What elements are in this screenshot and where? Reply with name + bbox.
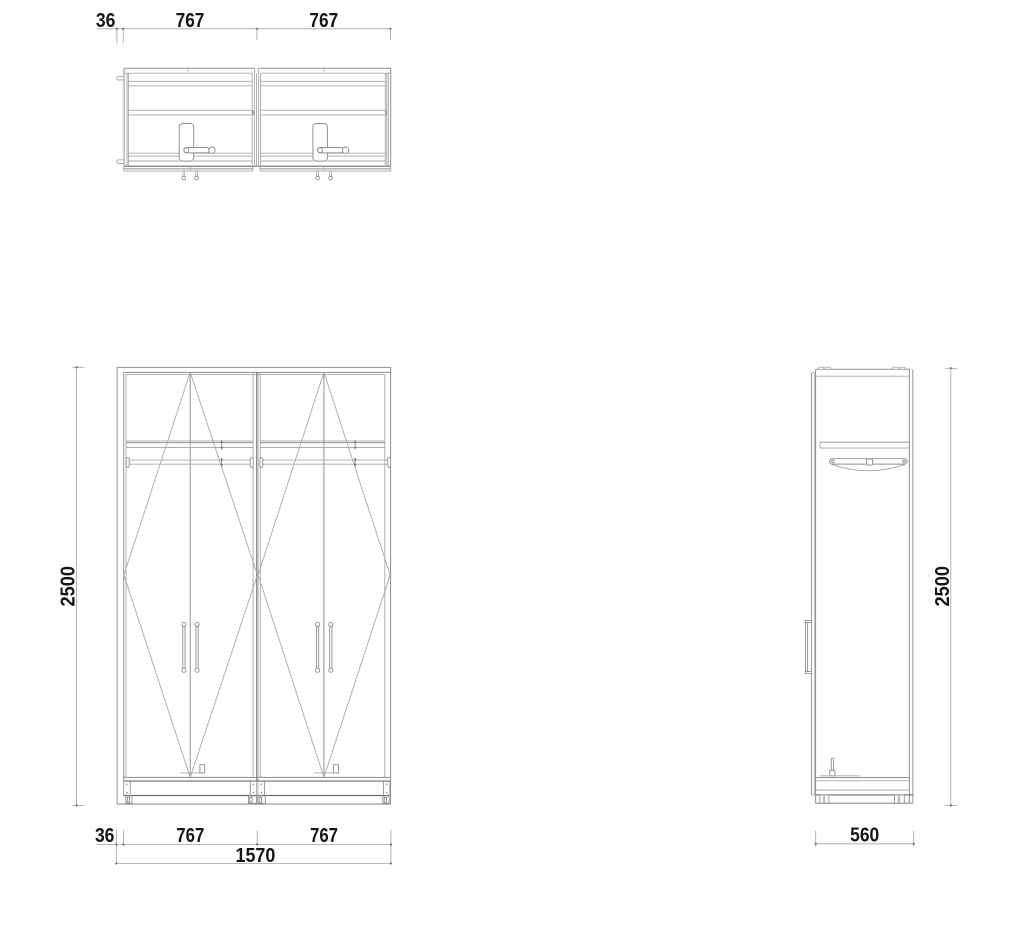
svg-text:560: 560 [850, 824, 879, 846]
svg-text:2500: 2500 [932, 566, 954, 607]
svg-text:36: 36 [96, 10, 116, 32]
svg-text:767: 767 [176, 825, 204, 847]
svg-text:36: 36 [95, 825, 115, 847]
svg-text:1570: 1570 [236, 845, 276, 867]
svg-text:767: 767 [309, 10, 338, 32]
svg-text:767: 767 [176, 10, 205, 32]
svg-text:2500: 2500 [58, 566, 80, 607]
svg-text:767: 767 [310, 825, 338, 847]
